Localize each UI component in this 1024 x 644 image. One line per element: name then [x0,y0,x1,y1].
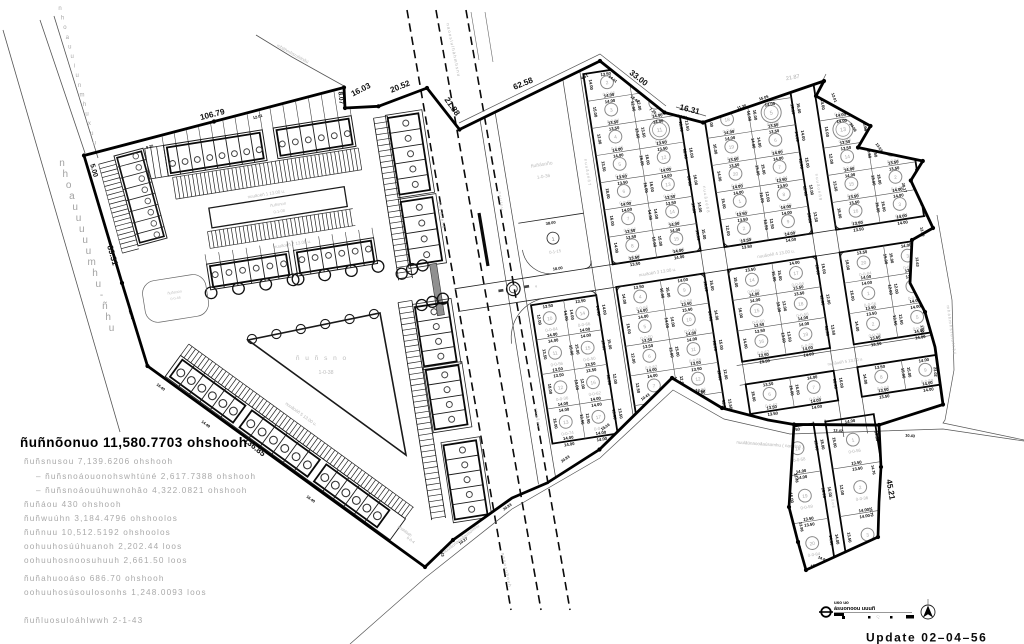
svg-text:13: 13 [840,127,847,134]
svg-text:17.01: 17.01 [920,325,926,336]
svg-text:oohuuhosúúhuanoh 2,202.44 lo: oohuuhosúúhuanoh 2,202.44 loos [24,542,182,551]
svg-text:u: u [109,323,115,334]
svg-text:ñuñáou 430 ohshooh: ñuñáou 430 ohshooh [24,500,122,509]
svg-text:h: h [63,169,69,180]
svg-text:i: i [74,64,75,70]
svg-text:ñuñahuooáso 686.70 ohshooh: ñuñahuooáso 686.70 ohshooh [24,574,165,583]
svg-text:u: u [93,140,96,146]
svg-text:ñ u ñ s n o: ñ u ñ s n o [296,355,348,362]
svg-text:m: m [88,257,96,268]
svg-text:u: u [76,73,79,79]
svg-text:oohuuhosnoosuhuuh 2,661.50 l: oohuuhosnoosuhuuh 2,661.50 loos [24,556,188,565]
svg-text:o: o [66,180,72,191]
svg-text:ñ: ñ [102,301,108,312]
svg-text:u: u [68,44,71,50]
svg-text:m: m [80,92,85,98]
svg-text:ñuñluosuloáhlwwh 2-1-43: ñuñluosuloáhlwwh 2-1-43 [24,616,143,625]
svg-text:a: a [69,191,75,202]
svg-text:h: h [105,312,111,323]
svg-text:ñuñwuúhn 3,184.4796 ohshoolo: ñuñwuúhn 3,184.4796 ohshoolos [24,514,178,523]
svg-text:n: n [59,158,65,169]
svg-text:u: u [82,235,88,246]
svg-text:ásuonoou uuuñ: ásuonoou uuuñ [834,606,876,612]
svg-text:– ñuñsnoáouonohswhtúné 2,617.: – ñuñsnoáouonohswhtúné 2,617.7388 ohshoo… [36,472,256,481]
svg-text:ñuñnõonuo 11,580.7703 ohshoo: ñuñnõonuo 11,580.7703 ohshooh [20,435,248,450]
svg-text:13.42: 13.42 [833,428,844,434]
svg-text:Update 02–04–56: Update 02–04–56 [866,631,987,644]
svg-text:u: u [72,202,78,213]
svg-text:23.02: 23.02 [933,367,939,378]
svg-text:u: u [96,279,102,290]
svg-text:n: n [58,6,61,12]
svg-text:h: h [92,268,98,279]
svg-text:u: u [85,112,88,118]
svg-text:u: u [90,131,93,137]
svg-text:n: n [78,83,81,89]
svg-text:x: x [88,121,91,127]
svg-text:u: u [71,54,74,60]
svg-text:8.07: 8.07 [336,91,344,105]
svg-text:uso uo: uso uo [834,600,849,605]
svg-text:10.43: 10.43 [905,433,916,439]
svg-text:u: u [79,224,85,235]
svg-text:oohuuhosúsoulosonhs 1,248.009: oohuuhosúsoulosonhs 1,248.0093 loos [24,588,207,597]
svg-text:-: - [100,290,103,301]
svg-text:11: 11 [656,127,663,134]
svg-text:13.63: 13.63 [915,257,921,268]
svg-text:– ñuñsnoáouúhuwnohâo 4,322.08: – ñuñsnoáouúhuwnohâo 4,322.0821 ohshooh [36,486,247,495]
svg-text:h: h [61,16,64,22]
svg-text:h: h [83,102,86,108]
svg-text:u: u [86,246,92,257]
svg-text:u: u [76,213,82,224]
svg-text:1-0-38: 1-0-38 [319,370,334,376]
svg-text:ñuñnuu 10,512.5192 ohshoolo: ñuñnuu 10,512.5192 ohshoolos [24,528,171,537]
svg-text:ñuñsnusou 7,139.6206 ohshooh: ñuñsnusou 7,139.6206 ohshooh [24,457,173,466]
